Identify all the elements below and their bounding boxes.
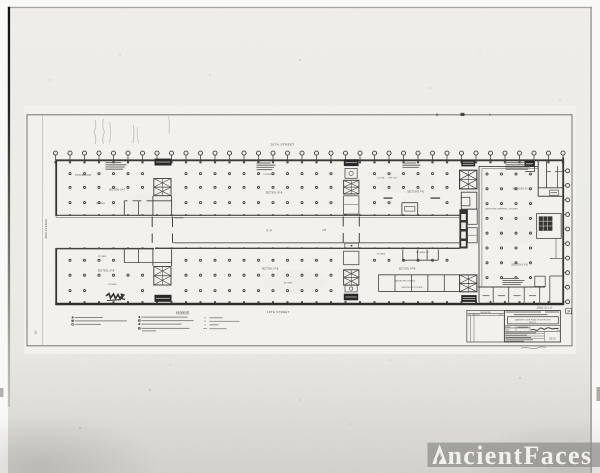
- svg-text:ncientFaces: ncientFaces: [448, 441, 593, 470]
